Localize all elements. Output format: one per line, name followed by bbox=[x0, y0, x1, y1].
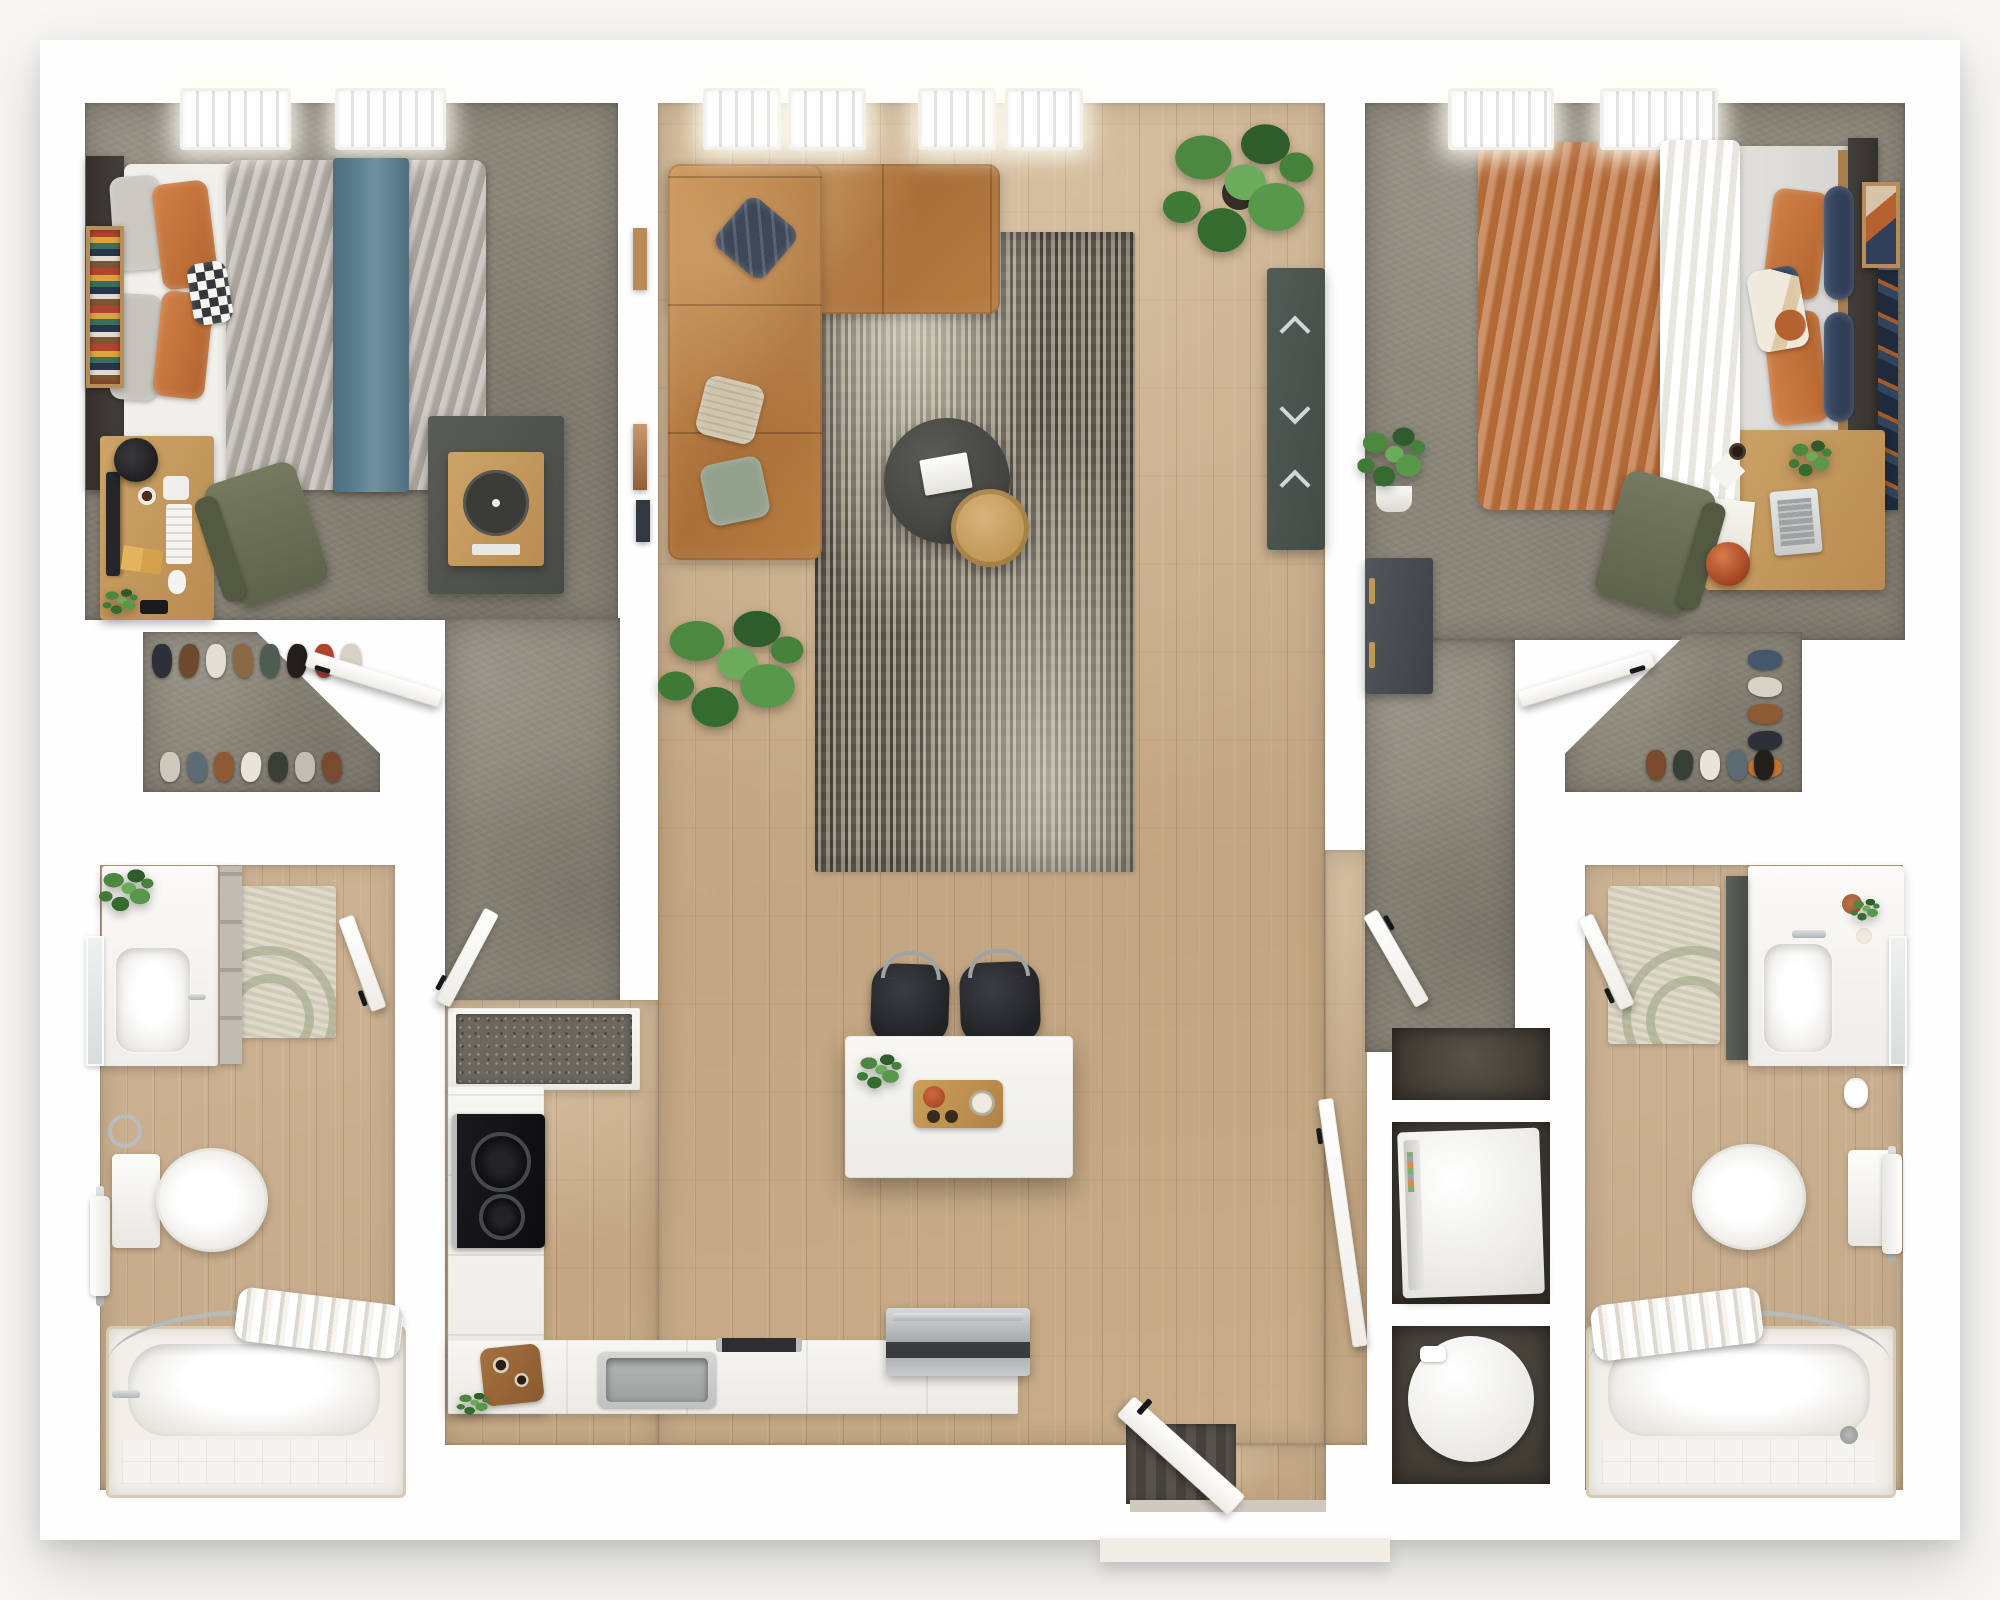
potted-plant bbox=[1356, 420, 1426, 496]
red-dish bbox=[923, 1086, 945, 1108]
leaves bbox=[102, 586, 138, 618]
island-plant bbox=[856, 1050, 902, 1094]
shoe-row bbox=[1646, 750, 1796, 784]
ceiling-light bbox=[703, 88, 781, 150]
bookshelf bbox=[86, 226, 124, 388]
chevron-handle bbox=[1279, 393, 1310, 424]
shoe bbox=[239, 751, 262, 783]
shoe bbox=[1671, 749, 1694, 781]
serving-tray bbox=[913, 1080, 1003, 1128]
books bbox=[90, 230, 120, 384]
floor-plan bbox=[0, 0, 2000, 1600]
espresso-cup bbox=[492, 1356, 510, 1374]
mouse bbox=[168, 570, 186, 594]
coffee-cup bbox=[1729, 443, 1746, 460]
wall-art-frame bbox=[633, 424, 647, 490]
sink-basin bbox=[116, 948, 190, 1052]
bath-rug bbox=[240, 886, 336, 1038]
shoe bbox=[1646, 750, 1666, 780]
shoe bbox=[321, 751, 344, 783]
turntable bbox=[448, 452, 544, 566]
wall-art-frame bbox=[1862, 182, 1900, 268]
pillow-navy bbox=[1824, 312, 1854, 422]
shoe bbox=[177, 643, 200, 679]
range-handle bbox=[892, 1313, 1024, 1321]
wall-mirror bbox=[86, 936, 104, 1066]
burner bbox=[471, 1132, 531, 1192]
desk-monitor bbox=[106, 472, 120, 576]
ceiling-light bbox=[1448, 88, 1554, 150]
washer bbox=[1397, 1128, 1545, 1299]
toilet-bowl bbox=[156, 1148, 268, 1252]
desk-plant bbox=[1788, 436, 1832, 482]
laptop bbox=[1769, 488, 1822, 556]
ceiling-light bbox=[335, 88, 446, 150]
shoe bbox=[1747, 676, 1782, 698]
chevron-handle bbox=[1279, 469, 1310, 500]
toilet-paper bbox=[1844, 1078, 1868, 1108]
shoe bbox=[1725, 749, 1748, 781]
shoe bbox=[160, 752, 180, 782]
shelf-tower bbox=[220, 866, 242, 1064]
candle bbox=[1856, 928, 1872, 944]
door-handle bbox=[1316, 1128, 1323, 1145]
laundry-shelf-niche bbox=[1392, 1028, 1550, 1100]
dresser bbox=[1365, 558, 1433, 694]
burner bbox=[479, 1194, 525, 1240]
shoe bbox=[1748, 650, 1782, 670]
controls bbox=[472, 544, 520, 555]
entry-step bbox=[1100, 1538, 1390, 1562]
coffee-cup bbox=[138, 487, 156, 505]
sink-bowl bbox=[606, 1358, 708, 1402]
faucet bbox=[1792, 930, 1826, 938]
bar-stool bbox=[959, 961, 1042, 1046]
chevron-handle bbox=[1279, 315, 1310, 346]
shoe bbox=[152, 644, 172, 678]
range-front bbox=[886, 1342, 1030, 1358]
shoe bbox=[260, 644, 280, 678]
side-table bbox=[951, 489, 1029, 567]
floor-plant bbox=[655, 596, 805, 746]
espresso-cup bbox=[514, 1372, 529, 1387]
glass-jar bbox=[969, 1090, 995, 1116]
stone-counter bbox=[456, 1014, 632, 1084]
ceiling-light bbox=[180, 88, 291, 150]
phone bbox=[140, 600, 168, 614]
bed-throw-teal bbox=[333, 158, 409, 492]
shoe bbox=[1747, 730, 1782, 752]
bed-duvet-orange bbox=[1478, 142, 1678, 510]
monstera-plant bbox=[1160, 108, 1315, 273]
wall-art-frame bbox=[633, 228, 647, 290]
sink-basin bbox=[1764, 944, 1832, 1052]
cup bbox=[927, 1110, 940, 1123]
range bbox=[886, 1308, 1030, 1376]
tub-tile-floor bbox=[122, 1440, 384, 1484]
vanity-plant bbox=[98, 864, 154, 918]
wall-art-frame bbox=[636, 500, 650, 542]
platter bbox=[463, 470, 529, 536]
wall-mirror bbox=[1889, 936, 1907, 1066]
bath-rug bbox=[1608, 886, 1720, 1044]
shoe bbox=[231, 643, 254, 679]
dryer-cap bbox=[1420, 1346, 1446, 1362]
shoe bbox=[185, 751, 209, 783]
ceiling-light bbox=[788, 88, 866, 150]
glass-shelf bbox=[716, 1338, 802, 1352]
shoe bbox=[214, 752, 234, 782]
ceiling-light bbox=[918, 88, 996, 150]
desk-plant bbox=[102, 586, 138, 618]
storage-cabinet bbox=[1726, 876, 1748, 1060]
floor-corridor-2 bbox=[1365, 640, 1515, 1052]
towel bbox=[90, 1196, 110, 1296]
shoe bbox=[206, 644, 226, 678]
keyboard bbox=[166, 504, 192, 564]
shoe bbox=[1748, 704, 1782, 724]
ceiling-light bbox=[1005, 88, 1083, 150]
cooktop bbox=[452, 1114, 545, 1248]
pillow-sage bbox=[698, 454, 772, 528]
toilet-tank bbox=[112, 1154, 160, 1248]
pillow-navy bbox=[1824, 186, 1854, 300]
media-console bbox=[1267, 268, 1325, 550]
orange-vase bbox=[1706, 542, 1750, 586]
desk-lamp bbox=[114, 438, 158, 482]
shoe-row bbox=[160, 752, 365, 788]
shoe bbox=[268, 752, 288, 782]
laptop-keys bbox=[1777, 498, 1815, 547]
tub-drain bbox=[1840, 1426, 1858, 1444]
brass-handle bbox=[1369, 578, 1375, 604]
bar-stool bbox=[870, 963, 951, 1046]
mouse-pad bbox=[163, 476, 189, 500]
cup bbox=[945, 1110, 958, 1123]
shoe bbox=[295, 752, 315, 782]
dryer bbox=[1408, 1336, 1534, 1462]
toilet-bowl bbox=[1692, 1144, 1806, 1250]
tub-faucet bbox=[112, 1390, 140, 1398]
shoe bbox=[1700, 750, 1720, 780]
herb-plant bbox=[456, 1390, 490, 1418]
faucet bbox=[188, 994, 206, 1000]
shoe bbox=[1754, 750, 1774, 780]
towel bbox=[1882, 1154, 1902, 1254]
vanity-plant bbox=[1850, 896, 1880, 924]
brass-handle bbox=[1369, 642, 1375, 668]
towel-ring bbox=[108, 1114, 142, 1148]
tub-tile-floor bbox=[1602, 1440, 1874, 1484]
